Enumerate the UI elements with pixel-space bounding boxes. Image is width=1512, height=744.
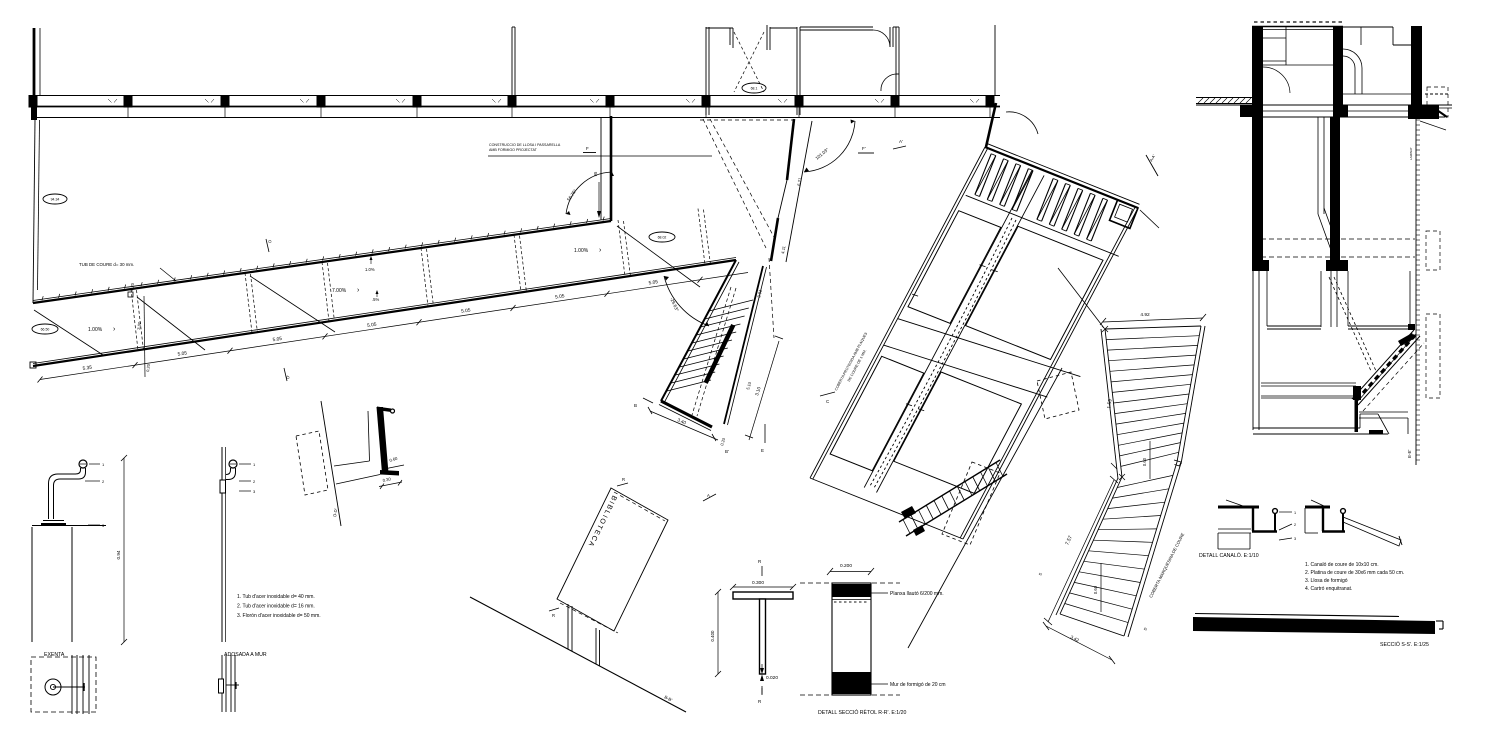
svg-text:2: 2 — [1294, 523, 1296, 527]
svg-text:TUB DE COURE d= 30 mm.: TUB DE COURE d= 30 mm. — [79, 262, 134, 267]
svg-text:1.00%: 1.00% — [574, 248, 589, 254]
svg-text:68.1: 68.1 — [751, 87, 758, 91]
svg-text:2. Tub d'acer inoxidable d=: 2. Tub d'acer inoxidable d= 16 mm. — [237, 604, 315, 610]
svg-text:B: B — [634, 403, 637, 408]
svg-text:AMB FORMIGO PROJECTAT: AMB FORMIGO PROJECTAT — [489, 148, 538, 152]
svg-text:1: 1 — [1294, 511, 1296, 515]
svg-text:ADOSADA A MUR: ADOSADA A MUR — [224, 652, 267, 658]
svg-text:DETALL CANALÓ. E:1/10: DETALL CANALÓ. E:1/10 — [1199, 552, 1259, 559]
svg-text:3. Llosa de formigó: 3. Llosa de formigó — [1305, 578, 1348, 584]
svg-text:A': A' — [899, 139, 903, 144]
svg-text:DETALL SECCIÓ RÈTOL R-R'. E:1/: DETALL SECCIÓ RÈTOL R-R'. E:1/20 — [818, 709, 906, 716]
svg-text:1. Tub d'acer inoxidable d=: 1. Tub d'acer inoxidable d= 40 mm. — [237, 594, 315, 600]
svg-text:SECCIÓ S-S'. E:1/25: SECCIÓ S-S'. E:1/25 — [1380, 641, 1429, 648]
svg-text:3: 3 — [1294, 537, 1296, 541]
svg-text:R: R — [552, 613, 555, 618]
svg-text:E-E': E-E' — [1407, 449, 1412, 458]
svg-text:Planxa llautó 6/200 mm.: Planxa llautó 6/200 mm. — [890, 591, 944, 597]
svg-text:LAMINAT: LAMINAT — [1409, 147, 1413, 160]
svg-text:CONSTRUCCIO DE LLOSA I PASSARE: CONSTRUCCIO DE LLOSA I PASSARELLA — [489, 143, 561, 147]
svg-text:66.50: 66.50 — [41, 328, 50, 332]
svg-text:Mur de formigó de 20 cm: Mur de formigó de 20 cm — [890, 682, 946, 688]
svg-text:B': B' — [725, 449, 729, 454]
svg-text:E: E — [761, 448, 764, 453]
svg-text:1.00%: 1.00% — [88, 327, 103, 333]
svg-text:0.94: 0.94 — [116, 550, 121, 559]
svg-text:3. Florón d'acer inoxidable d: 3. Florón d'acer inoxidable d= 50 mm. — [237, 613, 321, 619]
svg-text:1.0%: 1.0% — [365, 267, 375, 272]
svg-text:0.200: 0.200 — [840, 563, 852, 569]
svg-text:0.400: 0.400 — [710, 630, 715, 642]
svg-text:.5%: .5% — [372, 297, 379, 302]
svg-text:F: F — [586, 146, 589, 151]
svg-text:0.60: 0.60 — [1093, 585, 1098, 594]
svg-text:0.020: 0.020 — [766, 675, 778, 681]
svg-text:R: R — [622, 477, 625, 482]
svg-text:7.00%: 7.00% — [332, 288, 347, 294]
svg-text:4.92: 4.92 — [1140, 312, 1150, 318]
svg-text:0.300: 0.300 — [752, 580, 764, 586]
svg-text:94.34: 94.34 — [51, 198, 60, 202]
svg-text:F': F' — [862, 146, 866, 151]
svg-text:2. Platina de coure de 30x6 m: 2. Platina de coure de 30x6 mm cada 50 c… — [1305, 570, 1404, 576]
svg-text:95: 95 — [593, 171, 598, 176]
svg-text:68.02: 68.02 — [658, 236, 667, 240]
svg-text:4. Cartró enquitranat.: 4. Cartró enquitranat. — [1305, 586, 1352, 592]
svg-text:0.60: 0.60 — [1142, 457, 1147, 466]
svg-text:1. Canaló de coure de 10x10 c: 1. Canaló de coure de 10x10 cm. — [1305, 562, 1379, 568]
